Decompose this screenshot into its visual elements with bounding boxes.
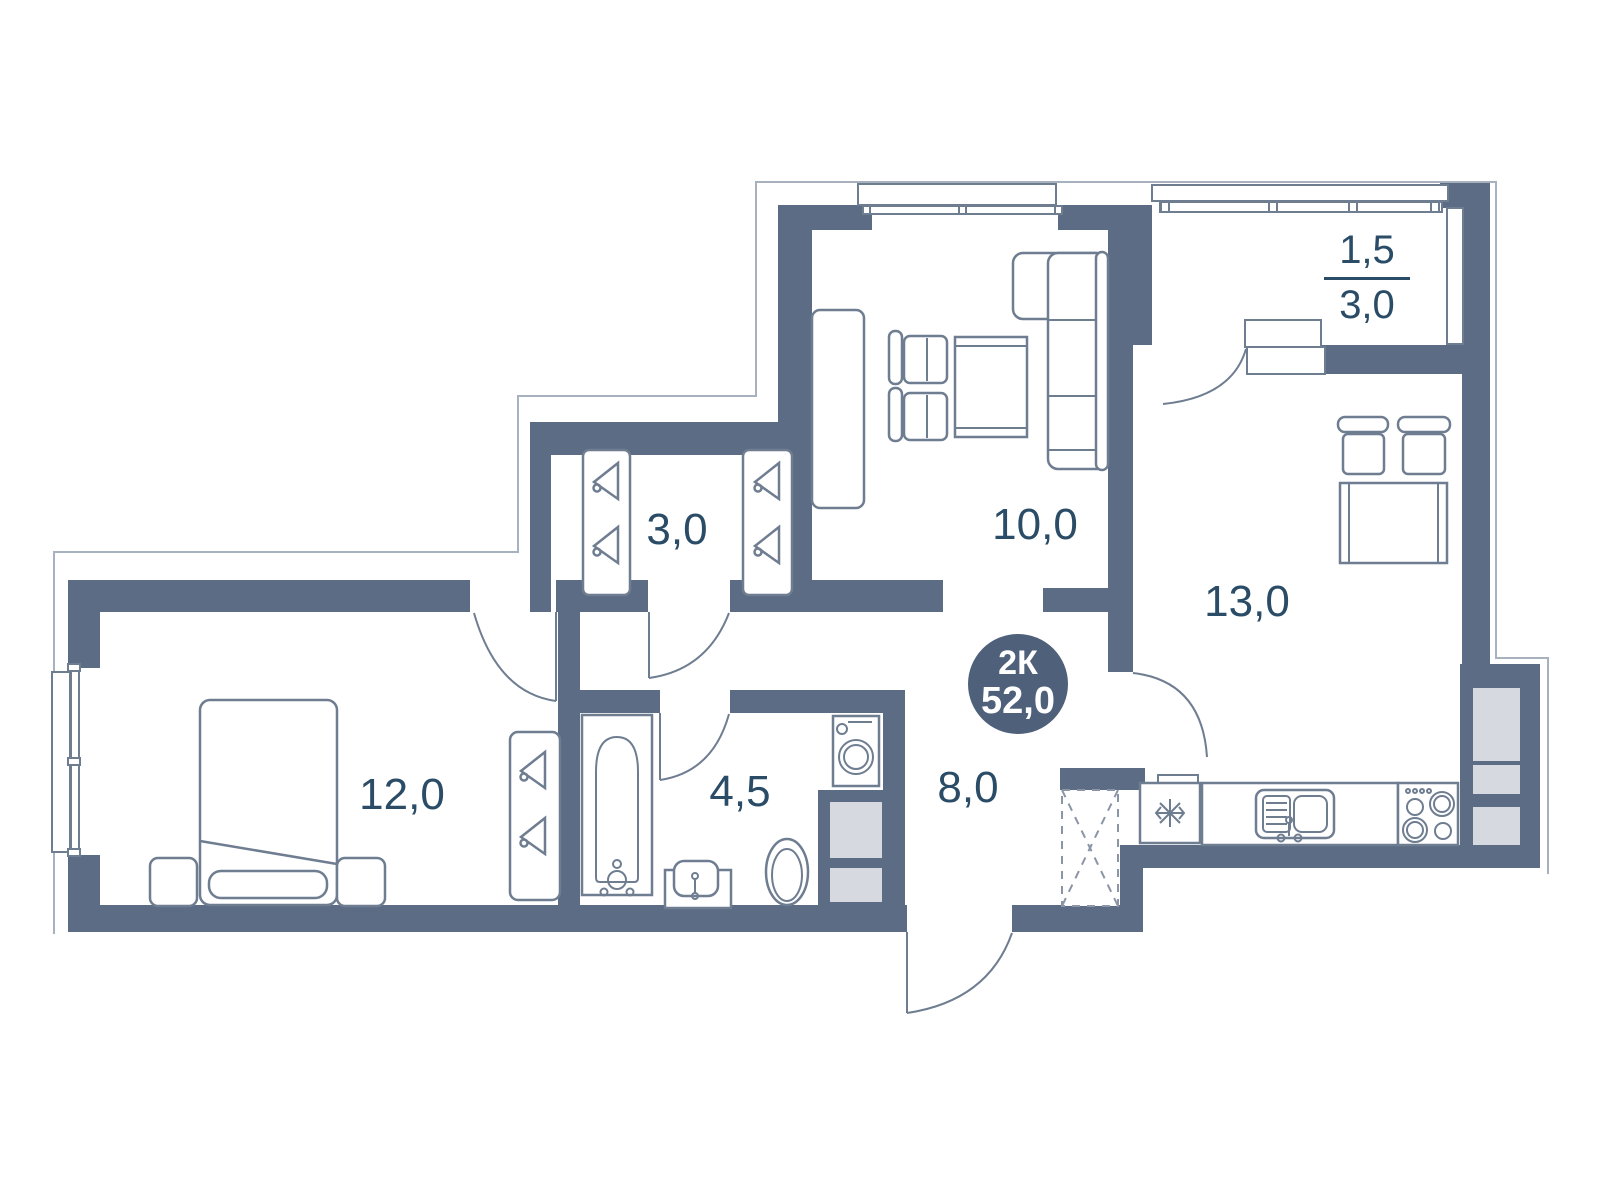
label-balcony-area: 1,5 3,0 — [1324, 228, 1410, 328]
apartment-total-area: 52,0 — [981, 682, 1055, 722]
armchair — [889, 388, 947, 441]
dining-table — [1340, 483, 1447, 563]
label-hallway: 8,0 — [937, 763, 998, 813]
wardrobe-room-door — [649, 612, 729, 678]
apartment-type: 2К — [998, 646, 1038, 682]
bedroom-window — [52, 664, 80, 856]
label-kitchen-living: 13,0 — [1204, 577, 1290, 627]
nightstand-right — [337, 858, 385, 906]
ventilation-shaft-bathroom — [830, 802, 882, 902]
entrance-door — [907, 932, 1012, 1013]
nightstand-left — [150, 858, 197, 906]
bedroom-door — [474, 612, 556, 701]
built-in-storage-dashed — [1062, 790, 1118, 906]
armchair — [889, 331, 947, 384]
refrigerator — [1140, 775, 1200, 843]
wardrobe-left — [583, 450, 630, 595]
apartment-badge: 2К 52,0 — [968, 634, 1068, 734]
kitchen-sink — [1256, 790, 1334, 842]
wardrobe-right — [743, 450, 792, 595]
kitchen-room-door — [1133, 673, 1207, 757]
coffee-table — [955, 337, 1027, 437]
cabinet — [812, 310, 864, 508]
label-bedroom: 12,0 — [359, 770, 445, 820]
bedroom-wardrobe — [510, 732, 560, 900]
floor-plan: 10,0 13,0 12,0 8,0 4,5 3,0 1,5 3,0 2К 52… — [0, 0, 1600, 1200]
washing-machine — [833, 716, 879, 786]
living-room-window — [858, 184, 1062, 214]
label-wardrobe-room: 3,0 — [646, 505, 707, 555]
washbasin — [665, 861, 731, 908]
balcony-full-area: 3,0 — [1324, 280, 1410, 328]
balcony-door — [1163, 320, 1325, 404]
label-bathroom: 4,5 — [709, 767, 770, 817]
chair — [1338, 417, 1388, 474]
label-living-room: 10,0 — [992, 500, 1078, 550]
bed — [200, 700, 337, 905]
bathtub — [582, 715, 652, 896]
floor-plan-drawing — [0, 0, 1600, 1200]
stove — [1398, 783, 1458, 845]
balcony-reduced-area: 1,5 — [1324, 228, 1410, 280]
chair — [1398, 417, 1450, 474]
snowflake-icon — [1156, 799, 1184, 827]
toilet — [766, 839, 808, 905]
ventilation-shaft-right — [1473, 688, 1520, 845]
